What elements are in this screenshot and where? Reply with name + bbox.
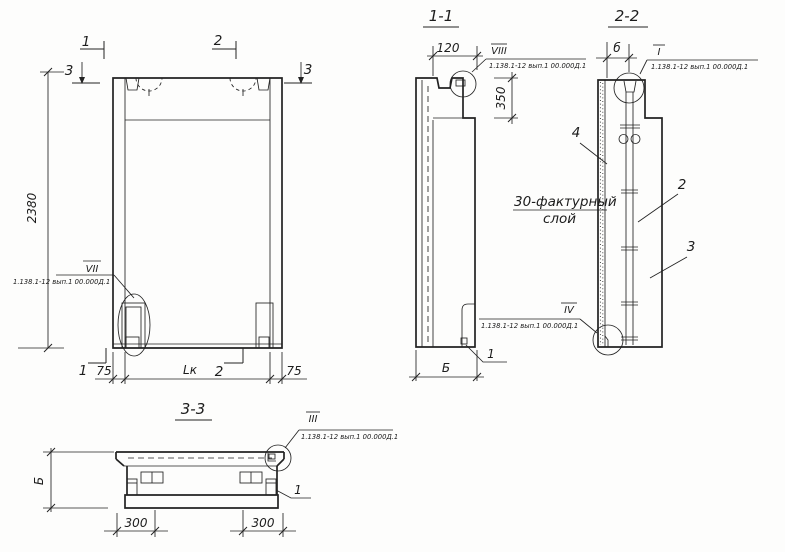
dim-350-label: 350 xyxy=(494,86,508,109)
callout-iii: III 1.138.1-12 вып.1 00.000Д.1 xyxy=(285,412,398,448)
dim-120: 120 xyxy=(427,41,483,76)
section-mark-1-top: 1 xyxy=(80,34,104,59)
note-line1: 30-фактурный xyxy=(514,194,617,210)
section-mark-3-left: 3 xyxy=(65,62,100,84)
dim-300-left-label: 300 xyxy=(125,516,148,530)
dim-b-section-3: Б xyxy=(32,448,114,512)
dim-height-2380: 2380 xyxy=(18,68,64,352)
section-3-3-view: 3-3 xyxy=(32,400,398,537)
dim-75-right: 75 xyxy=(286,364,301,378)
callout-viii: VIII 1.138.1-12 вып.1 00.000Д.1 xyxy=(472,44,586,72)
dim-75-left: 75 xyxy=(96,364,111,378)
dim-300-left: 300 xyxy=(104,510,168,537)
dim-height-label: 2380 xyxy=(25,192,39,223)
section-mark-2-top: 2 xyxy=(212,33,236,59)
section-mark-2-bottom-label: 2 xyxy=(215,364,224,380)
section-mark-1-bottom-label: 1 xyxy=(79,363,88,379)
panel-outline xyxy=(113,78,282,348)
section-mark-2-top-label: 2 xyxy=(214,33,223,49)
note-line2: слой xyxy=(543,211,576,227)
detail-iii-label: III xyxy=(309,414,318,425)
item-4-label: 4 xyxy=(572,125,581,141)
embedded-item-right xyxy=(256,303,273,348)
detail-i-label: I xyxy=(658,47,661,58)
dim-b-rib: б xyxy=(596,41,637,78)
section-3-3-title: 3-3 xyxy=(181,400,206,418)
front-view: 2380 1 2 3 3 1 xyxy=(13,33,312,384)
callout-iii-ref: 1.138.1-12 вып.1 00.000Д.1 xyxy=(301,433,398,441)
lifting-loop-recess-right xyxy=(230,78,270,96)
callout-vii: VII 1.138.1-12 вып.1 00.000Д.1 xyxy=(13,261,134,298)
dim-300-right-label: 300 xyxy=(252,516,275,530)
dim-bottom-chain: 75 Lк 75 xyxy=(95,352,307,384)
embedded-item-right-3-3 xyxy=(266,479,276,495)
dim-b-label-3: Б xyxy=(32,477,46,485)
textured-layer-note: 30-фактурный слой xyxy=(513,194,617,227)
item-2-label: 2 xyxy=(678,177,687,193)
dim-length-label: Lк xyxy=(183,363,198,377)
item-3-leader: 3 xyxy=(650,239,695,278)
detail-iv-label: IV xyxy=(564,305,575,316)
embedded-item-left-3-3 xyxy=(127,479,137,495)
section-mark-1-top-label: 1 xyxy=(82,34,91,50)
detail-i-circle xyxy=(614,73,644,103)
section-mark-3-right: 3 xyxy=(284,62,312,84)
reinforcement-bar xyxy=(619,81,640,345)
section-mark-3-left-label: 3 xyxy=(65,63,74,79)
section-mark-2-bottom: 2 xyxy=(215,348,243,380)
section-2-2-title: 2-2 xyxy=(615,7,640,25)
detail-vii-label: VII xyxy=(86,264,99,275)
item-1-leader-s3: 1 xyxy=(276,483,311,498)
section-2-2-outline xyxy=(598,80,662,347)
callout-iv-ref: 1.138.1-12 вып.1 00.000Д.1 xyxy=(481,322,578,330)
textured-layer xyxy=(600,80,608,347)
callout-vii-ref: 1.138.1-12 вып.1 00.000Д.1 xyxy=(13,278,110,286)
technical-drawing: 2380 1 2 3 3 1 xyxy=(0,0,785,552)
item-1-label-s1: 1 xyxy=(487,347,495,361)
dim-b-section-1: Б xyxy=(409,350,484,381)
dim-b-label-1: Б xyxy=(442,361,450,375)
dim-350: 350 xyxy=(494,72,518,124)
callout-viii-ref: 1.138.1-12 вып.1 00.000Д.1 xyxy=(489,62,586,70)
lifting-loop-recess-left xyxy=(126,78,162,96)
drawing-sheet: 2380 1 2 3 3 1 xyxy=(0,0,785,552)
callout-iv: IV 1.138.1-12 вып.1 00.000Д.1 xyxy=(479,303,597,333)
vent-window-right xyxy=(240,472,262,483)
item-3-label: 3 xyxy=(687,239,696,255)
section-1-1-title: 1-1 xyxy=(429,7,454,25)
bottom-foot-profile xyxy=(462,304,475,347)
callout-i-ref: 1.138.1-12 вып.1 00.000Д.1 xyxy=(651,63,748,71)
vent-window-left xyxy=(141,472,163,483)
detail-viii-label: VIII xyxy=(491,46,507,57)
dim-b-rib-label: б xyxy=(613,41,621,55)
item-4-leader: 4 xyxy=(572,125,607,164)
dim-120-label: 120 xyxy=(437,41,460,55)
section-mark-3-right-label: 3 xyxy=(304,62,313,78)
item-1-label-s3: 1 xyxy=(294,483,302,497)
embedded-item-left xyxy=(122,303,145,348)
callout-i: I 1.138.1-12 вып.1 00.000Д.1 xyxy=(640,45,758,74)
dim-300-right: 300 xyxy=(230,510,296,537)
